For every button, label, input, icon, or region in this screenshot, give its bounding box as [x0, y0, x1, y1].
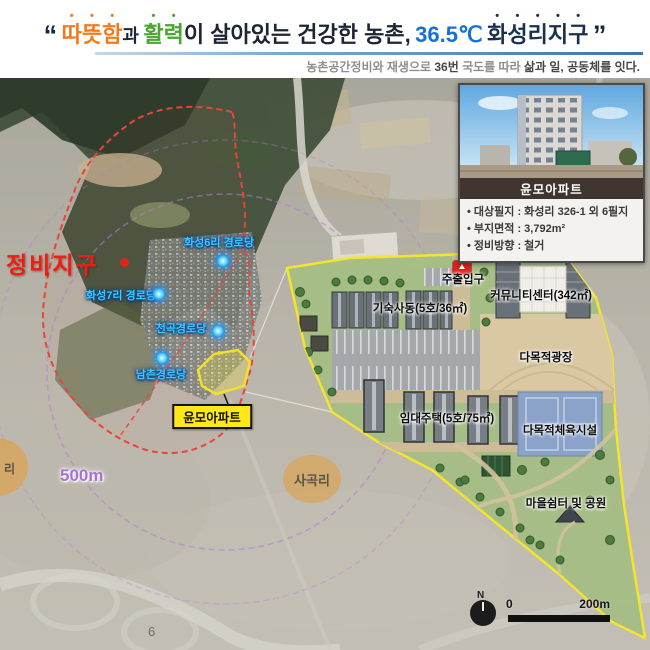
left-edge-label: 리: [4, 460, 15, 477]
title-warm: 따뜻함: [62, 22, 123, 47]
title-vitality: 활력: [143, 22, 183, 47]
plan-label-rental-housing: 임대주택(5호/75㎡): [400, 410, 494, 426]
apartment-name-bar: 윤모아파트: [460, 178, 643, 199]
poi-dot-icon: [156, 352, 169, 365]
title-underline: [95, 52, 643, 55]
open-quote: “: [44, 20, 58, 50]
poi-dot-icon: [153, 288, 166, 301]
poi-label-namchon: 남촌경로당: [136, 366, 187, 382]
village-label: 사곡리: [294, 470, 330, 489]
page-title: “ 따뜻함과 활력이 살아있는 건강한 농촌, 36.5℃ 화성리지구 ”: [0, 10, 650, 51]
title-district: 화성리지구: [487, 22, 588, 47]
plan-label-park: 마을쉼터 및 공원: [526, 495, 606, 511]
close-quote: ”: [593, 20, 607, 50]
district-zone-label: 정비지구: [6, 246, 99, 280]
apartment-info-panel: 윤모아파트 • 대상필지 : 화성리 326-1 외 6필지 • 부지면적 : …: [458, 83, 645, 263]
subtitle: 농촌공간정비와 재생으로 36번 국도를 따라 삶과 일, 공동체를 잇다.: [306, 58, 640, 75]
poi-label-cheongok: 천곡경로당: [156, 320, 207, 336]
village-circle: 사곡리: [283, 455, 341, 503]
subtitle-tail: 삶과 일, 공동체를 잇다.: [524, 60, 640, 74]
north-arrow-icon: [470, 600, 496, 626]
radius-label: 500m: [60, 466, 103, 486]
info-parcel: • 대상필지 : 화성리 326-1 외 6필지: [467, 204, 636, 221]
plan-label-plaza: 다목적광장: [520, 349, 573, 365]
title-temperature: 36.5℃: [415, 22, 483, 47]
scale-max: 200m: [558, 597, 610, 611]
poster-page: “ 따뜻함과 활력이 살아있는 건강한 농촌, 36.5℃ 화성리지구 ” 농촌…: [0, 0, 650, 650]
subtitle-mid: 국도를 따라: [459, 60, 524, 74]
plan-label-entrance: 주출입구: [442, 271, 484, 287]
poi-label-hwaseong6: 화성6리 경로당: [184, 234, 254, 250]
plan-label-sports-facility: 다목적체육시설: [523, 422, 597, 438]
page-number: 6: [148, 624, 155, 639]
district-marker-dot: [120, 258, 129, 267]
satellite-map: 정비지구 화성6리 경로당 화성7리 경로당 천곡경로당 남촌경로당 윤모아파트…: [0, 78, 650, 650]
scale-zero: 0: [506, 597, 513, 611]
subtitle-lead: 농촌공간정비와 재생으로: [306, 60, 434, 74]
plan-label-community-center: 커뮤니티센터(342㎡): [490, 287, 592, 303]
parking-lot: [332, 330, 480, 354]
site-info-list: • 대상필지 : 화성리 326-1 외 6필지 • 부지면적 : 3,792m…: [460, 199, 643, 261]
poi-dot-icon: [217, 255, 230, 268]
subtitle-highway: 36번: [434, 60, 458, 74]
poi-label-hwaseong7: 화성7리 경로당: [86, 287, 156, 303]
header: “ 따뜻함과 활력이 살아있는 건강한 농촌, 36.5℃ 화성리지구 ” 농촌…: [0, 0, 650, 78]
apartment-photo: [460, 85, 643, 178]
info-direction: • 정비방향 : 철거: [467, 238, 636, 255]
info-area: • 부지면적 : 3,792m²: [467, 221, 636, 238]
scale-bar: [508, 615, 610, 622]
title-particle: 과: [122, 26, 139, 46]
title-middle: 이 살아있는 건강한 농촌,: [184, 22, 411, 47]
apartment-callout: 윤모아파트: [172, 404, 252, 429]
poi-dot-icon: [212, 325, 225, 338]
plan-label-dormitory: 기숙사동(5호/36㎡): [373, 300, 467, 316]
